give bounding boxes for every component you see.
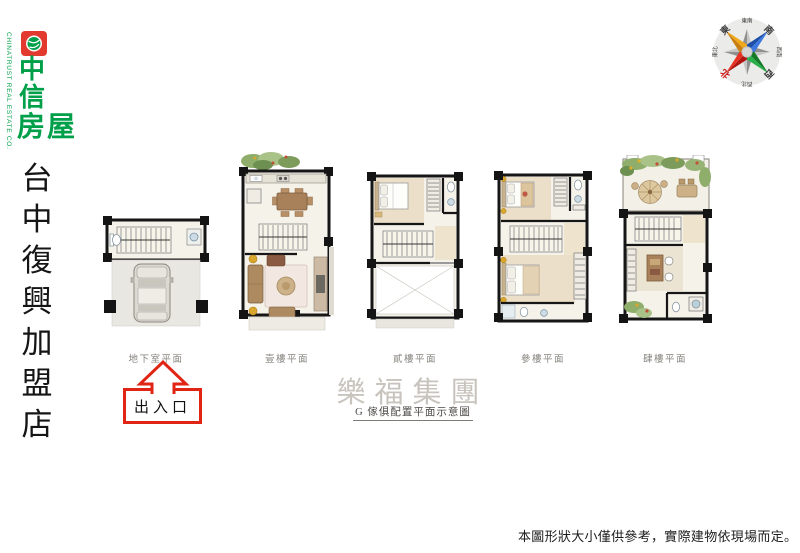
toilet-icon — [110, 234, 121, 246]
store-name-char: 加 — [22, 327, 53, 358]
company-name-en: CHINATRUST REAL ESTATE CO. — [5, 32, 12, 150]
toilet-icon — [574, 180, 581, 190]
toilet-icon — [520, 307, 528, 316]
floorplan-sheet: CHINATRUST REAL ESTATE CO. 中 信 房 屋 台 中 復… — [0, 0, 800, 553]
laundry-icon — [689, 297, 703, 311]
floorplan-basement-drawing — [103, 214, 209, 334]
staircase — [635, 217, 681, 241]
void-area — [376, 266, 454, 314]
plan-label-1f: 壹樓平面 — [242, 351, 332, 365]
entrance-arrow-icon — [133, 360, 193, 396]
bookshelf-icon — [627, 249, 636, 291]
compass-rose-icon: 東南 南 西南 西 西北 北 東北 東 — [710, 15, 784, 89]
store-name-char: 台 — [22, 163, 53, 194]
store-name-char: 中 — [22, 204, 53, 235]
sink-icon — [187, 229, 201, 245]
plan-caption: G 傢俱配置平面示意圖 — [323, 404, 503, 419]
toilet-icon — [672, 302, 679, 312]
compass-label-sw: 西南 — [775, 46, 783, 58]
store-name-char: 店 — [22, 409, 53, 440]
logo-char-2: 信 — [19, 84, 45, 110]
store-name-char: 興 — [22, 286, 53, 317]
disclaimer-text: 本圖形狀大小僅供參考，實際建物依現場而定。 — [518, 526, 798, 545]
staircase — [383, 231, 433, 257]
shower-icon — [502, 305, 515, 318]
floorplan-1f-drawing — [239, 151, 335, 337]
garden-icon — [241, 152, 300, 170]
staircase — [510, 226, 562, 252]
plan-label-2f: 貳樓平面 — [370, 351, 460, 365]
wardrobe-icon — [427, 179, 440, 211]
floorplan-3f-drawing — [494, 171, 593, 331]
kitchen-counter-icon — [246, 174, 326, 183]
compass-label-ne: 東北 — [711, 46, 719, 58]
plan-label-3f: 參樓平面 — [498, 351, 588, 365]
company-logo-emblem-icon — [21, 31, 47, 56]
floorplan-4f-drawing — [617, 155, 714, 329]
staircase — [117, 227, 171, 253]
sink-icon — [448, 199, 455, 206]
floorplan-2f-drawing — [367, 171, 464, 334]
toilet-icon — [447, 182, 454, 192]
sink-icon — [575, 196, 582, 203]
store-name-char: 盟 — [22, 368, 53, 399]
compass-label-nw: 西北 — [741, 80, 753, 88]
store-name-vertical: 台 中 復 興 加 盟 店 — [19, 163, 55, 440]
logo-char-3: 房 — [17, 113, 45, 141]
wardrobe-icon — [554, 178, 567, 206]
sink-icon — [541, 310, 548, 317]
compass-label-se: 東南 — [741, 17, 753, 25]
logo-char-1: 中 — [19, 56, 45, 82]
wardrobe-icon — [574, 253, 586, 299]
plan-label-4f: 肆樓平面 — [620, 351, 710, 365]
fridge-icon — [247, 189, 261, 203]
store-name-char: 復 — [22, 245, 53, 276]
car-icon — [131, 264, 174, 322]
logo-char-4: 屋 — [47, 113, 75, 141]
staircase — [259, 224, 307, 250]
